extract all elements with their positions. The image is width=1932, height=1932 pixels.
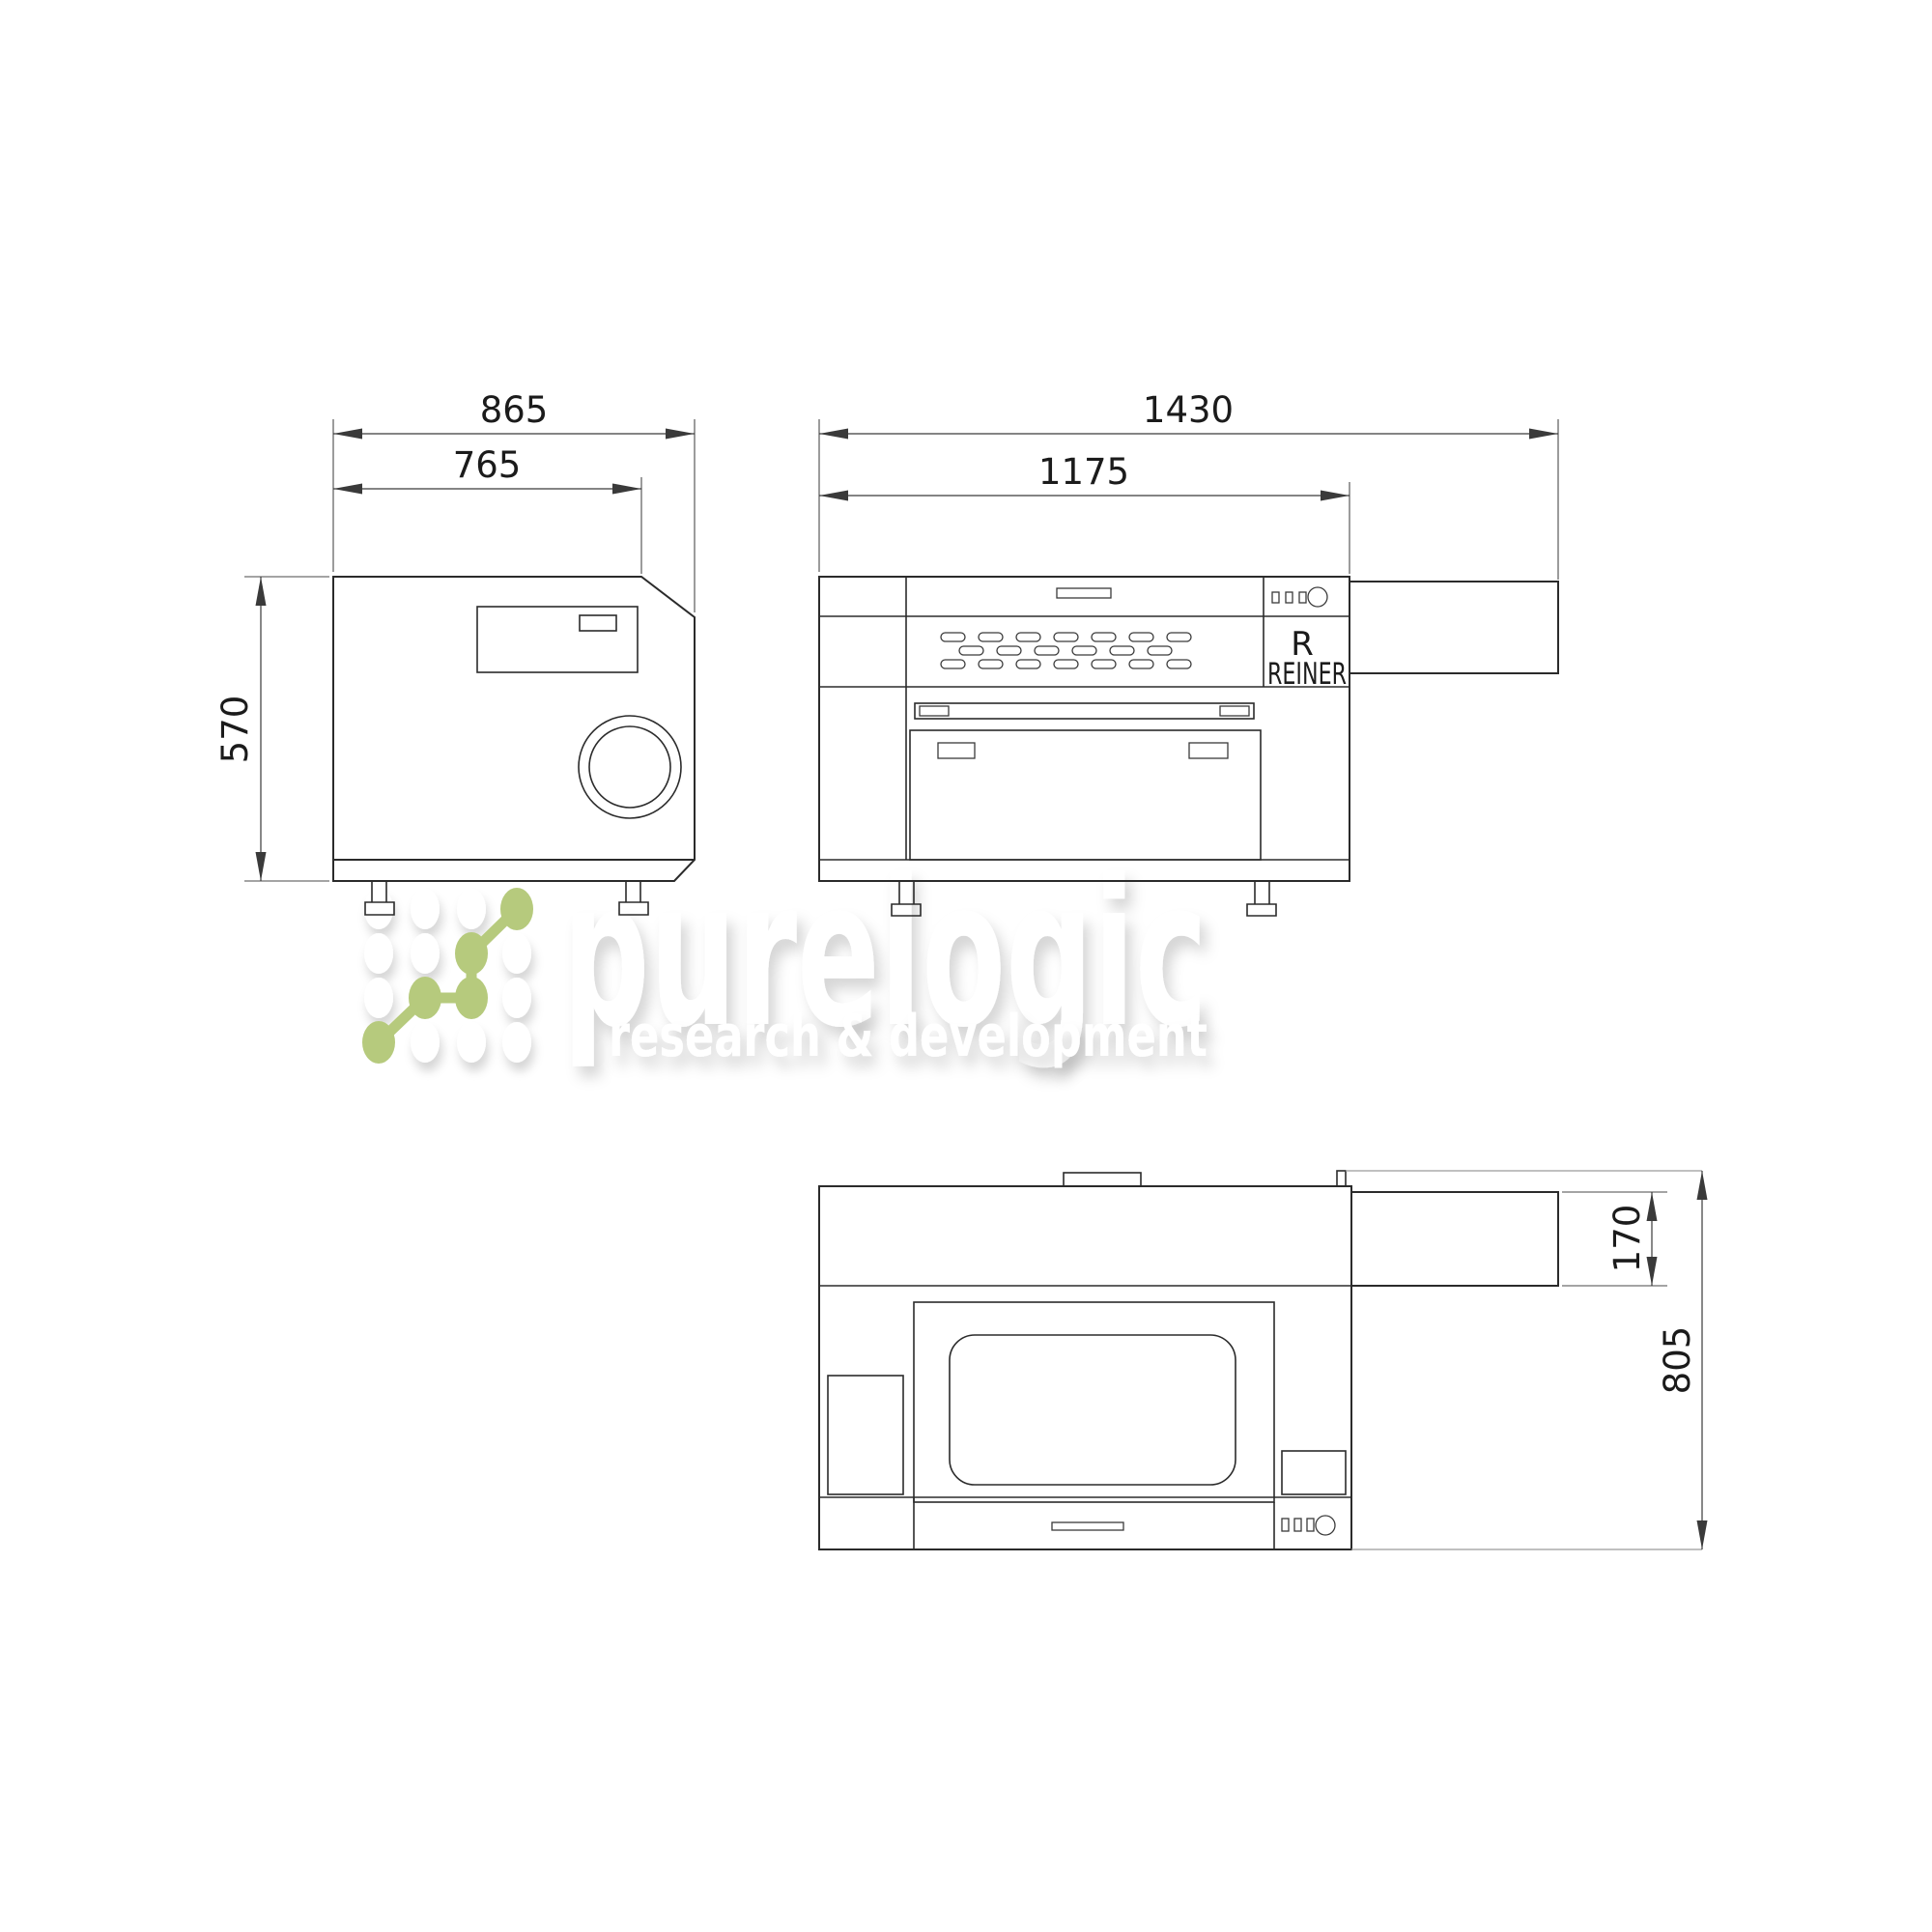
dim-170: 170 xyxy=(1562,1192,1667,1286)
front-extension-box xyxy=(1350,582,1558,673)
led-indicators xyxy=(1272,592,1306,603)
top-power-button-icon xyxy=(1316,1516,1335,1535)
vent-slots xyxy=(941,633,1191,668)
door-handle-left xyxy=(938,743,975,758)
dim-label-170: 170 xyxy=(1606,1205,1648,1273)
dim-765: 765 xyxy=(333,444,641,574)
drawing-page: purelogic research & development 865 xyxy=(0,0,1932,1932)
top-inner-panel xyxy=(914,1302,1274,1502)
reiner-logo-text: REINER xyxy=(1267,657,1347,692)
side-port-inner xyxy=(589,726,670,808)
dim-805: 805 xyxy=(1657,1171,1702,1549)
dim-1430: 1430 xyxy=(819,389,1558,580)
watermark-subtitle: research & development xyxy=(609,1003,1207,1070)
top-led-indicators xyxy=(1282,1519,1314,1531)
table-slot xyxy=(915,703,1254,719)
dim-570: 570 xyxy=(214,577,329,881)
front-lid-handle xyxy=(1057,588,1111,598)
watermark-green-links xyxy=(379,909,517,1042)
top-left-hatch xyxy=(828,1376,903,1494)
dim-label-1430: 1430 xyxy=(1143,389,1234,431)
dim-label-805: 805 xyxy=(1657,1326,1698,1395)
dim-label-865: 865 xyxy=(480,389,549,431)
dim-1175: 1175 xyxy=(819,451,1350,574)
top-view: 170 805 xyxy=(819,1171,1702,1549)
watermark: purelogic research & development xyxy=(362,836,1207,1072)
dim-865: 865 xyxy=(333,389,695,612)
viewport-window xyxy=(950,1335,1236,1485)
side-port-outer xyxy=(579,716,681,818)
power-button-icon xyxy=(1308,587,1327,607)
door-handle-right xyxy=(1189,743,1228,758)
side-panel-display xyxy=(580,615,616,631)
top-extension-box xyxy=(1351,1192,1558,1286)
dim-label-765: 765 xyxy=(453,444,522,486)
exhaust-duct xyxy=(1064,1173,1141,1186)
top-lid-handle xyxy=(1052,1522,1123,1530)
top-right-hatch xyxy=(1282,1451,1346,1494)
side-panel xyxy=(477,607,638,672)
rear-tab xyxy=(1337,1171,1346,1186)
dim-label-570: 570 xyxy=(214,696,256,764)
dim-label-1175: 1175 xyxy=(1038,451,1129,493)
